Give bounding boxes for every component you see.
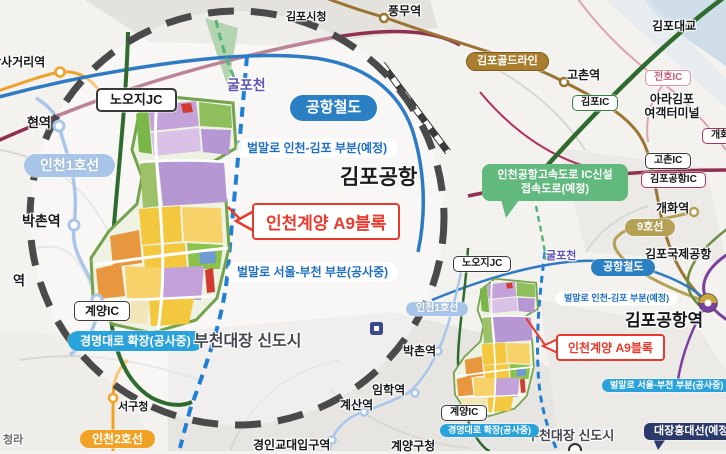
ara-gimpo-terminal-label: 아라김포 여객터미널 [624, 92, 720, 121]
gimpo-airport-ic-badge: 김포공항IC [641, 172, 706, 188]
expressway-callout: 인천공항고속도로 IC신설 접속도로(예정) [482, 164, 628, 201]
gimpo-ic-badge: 김포IC [572, 95, 618, 111]
jeonho-ic-badge: 전호IC [645, 70, 691, 86]
gyeongin-edu-station-label: 경인교대입구역 [253, 436, 330, 453]
expressway-callout-line1: 인천공항고속도로 IC신설 [497, 169, 612, 181]
gaehwa-station-dot [690, 208, 698, 216]
daejang-hongdae-line-badge: 대장홍대선(예정) [644, 423, 726, 440]
gyesan-station-label: 계산역 [340, 396, 373, 413]
gimpo-airport-station-label: 김포공항역 [625, 306, 703, 331]
gyeongmyeong-daero-badge-magnified: 경명대로 확장(공사중) [68, 331, 203, 351]
gyulhyeon-station-dot [54, 121, 64, 131]
line9-badge: 9호선 [625, 219, 675, 236]
gimpo-goldline-badge: 김포골드라인 [466, 52, 549, 71]
gimpo-cityhall-label: 김포시청 [286, 8, 326, 24]
cheongna-label: 청라 [3, 431, 23, 447]
beolmallo-seoul-bucheon-badge-inset: 벌말로 서울-부천 부분(공사중) [602, 379, 726, 392]
daejang-station-dot [569, 444, 581, 451]
pungmu-station-label: 풍무역 [388, 2, 421, 19]
gyeyang-ic-badge-magnified: 계양IC [74, 301, 130, 321]
nooji-jc-badge-base: 노오지JC [453, 256, 511, 272]
green-dashed-inset [536, 206, 546, 260]
nooji-jc-badge-magnified: 노오지JC [96, 88, 177, 112]
map-canvas: { "title": "인천계양 A9블록 위치도", "colors": { … [0, 0, 726, 451]
gochon-station-label: 고촌역 [567, 66, 600, 83]
incheon-line1-badge-magnified: 인천1호선 [24, 154, 115, 177]
ara-terminal-line1: 아라김포 [650, 92, 694, 106]
gaehwa-ic-badge: 개화IC [702, 128, 726, 144]
dansageori-station-label: 단사거리역 [0, 53, 45, 70]
beolmallo-incheon-gimpo-badge-base: 벌말로 인천-김포 부분(예정) [556, 292, 677, 305]
beolmallo-seoul-bucheon-badge-magnified: 벌말로 서울-부천 부분(공사중) [227, 263, 398, 281]
imhak-station-label-partial: 역 [13, 270, 25, 289]
seogu-office-label: 서구청 [118, 398, 148, 414]
gimpo-intl-airport-label: 김포국제공항 [645, 245, 711, 262]
bucheon-daejang-label-magnified: 부천대장 신도시 [194, 327, 302, 351]
gimpo-bridge-label: 김포대교 [652, 17, 696, 34]
beolmallo-incheon-gimpo-badge-magnified: 벌말로 인천-김포 부분(예정) [237, 139, 397, 157]
gyeyang-ic-badge-inset: 계양IC [441, 405, 487, 421]
airport-railroad-badge-magnified: 공항철도 [290, 95, 377, 121]
expressway-callout-line2: 접속도로(예정) [521, 183, 589, 195]
gyeyang-guchong-label: 계양구청 [391, 437, 435, 454]
imhak-station-dot-inset [412, 390, 419, 397]
imhak-station-label-inset: 임학역 [372, 381, 405, 398]
a9-block-callout-inset: 인천계양 A9블록 [556, 334, 665, 361]
bakchon-station-label-inset: 박촌역 [403, 342, 436, 359]
gyulhyeon-station-label-partial: 현역 [27, 112, 51, 131]
gochon-ic-badge: 고촌IC [645, 153, 691, 169]
gulpocheon-label-base: 굴포천 [546, 247, 576, 263]
gyeongmyeong-daero-badge-inset: 경명대로 확장(공사중) [440, 424, 539, 437]
gimpo-airport-label: 김포공항 [340, 161, 417, 191]
gulpocheon-label-magnified: 굴포천 [227, 75, 266, 95]
dansageori-station-dot [56, 68, 65, 77]
gaehwa-station-label: 개화역 [656, 199, 689, 216]
incheon-line2-badge: 인천2호선 [80, 430, 155, 448]
incheon-line1-badge-base: 인천1호선 [406, 302, 468, 316]
seogu-office-station-dot [109, 394, 117, 402]
bakchon-station-label-magnified: 박촌역 [22, 211, 61, 231]
pungmu-station-dot [380, 14, 388, 22]
a9-block-callout-magnified: 인천계양 A9블록 [252, 203, 400, 240]
airport-railroad-badge-base: 공항철도 [591, 259, 655, 276]
bakchon-station-dot-magnified [69, 220, 79, 230]
bucheon-daejang-label-inset: 부천대장 신도시 [527, 425, 614, 444]
ara-terminal-line2: 여객터미널 [644, 106, 699, 120]
